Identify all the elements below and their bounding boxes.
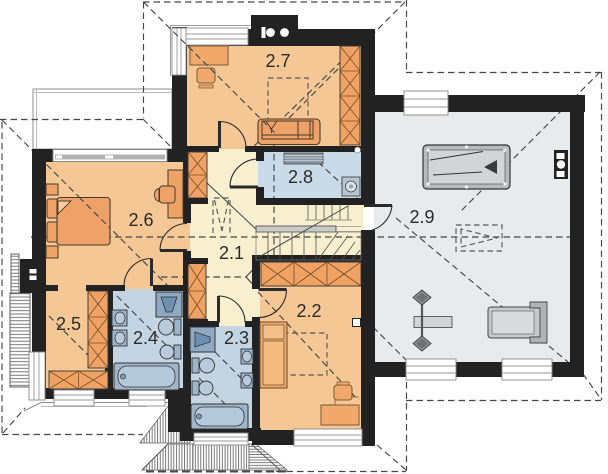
svg-text:2.8: 2.8 — [288, 167, 313, 187]
svg-text:2.2: 2.2 — [296, 301, 321, 321]
svg-text:2.7: 2.7 — [265, 51, 290, 71]
svg-text:2.3: 2.3 — [224, 328, 249, 348]
svg-text:2.4: 2.4 — [133, 328, 158, 348]
svg-text:2.9: 2.9 — [409, 207, 434, 227]
svg-text:2.5: 2.5 — [56, 314, 81, 334]
svg-text:2.1: 2.1 — [219, 243, 244, 263]
svg-text:2.6: 2.6 — [128, 210, 153, 230]
